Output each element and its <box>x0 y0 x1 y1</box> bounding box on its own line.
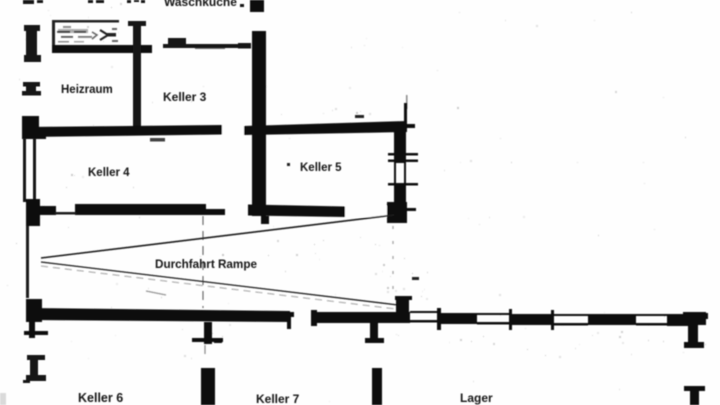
svg-text:Waschküche: Waschküche <box>164 0 237 9</box>
svg-text:Heizraum: Heizraum <box>61 84 113 96</box>
svg-text:Keller 7: Keller 7 <box>256 392 300 405</box>
svg-text:Keller 4: Keller 4 <box>88 167 130 179</box>
svg-text:Lager: Lager <box>460 391 493 405</box>
svg-text:Keller 3: Keller 3 <box>163 90 207 104</box>
svg-text:Durchfahrt Rampe: Durchfahrt Rampe <box>155 258 257 271</box>
svg-text:Keller 5: Keller 5 <box>300 162 342 174</box>
svg-text:Keller 6: Keller 6 <box>78 391 123 405</box>
